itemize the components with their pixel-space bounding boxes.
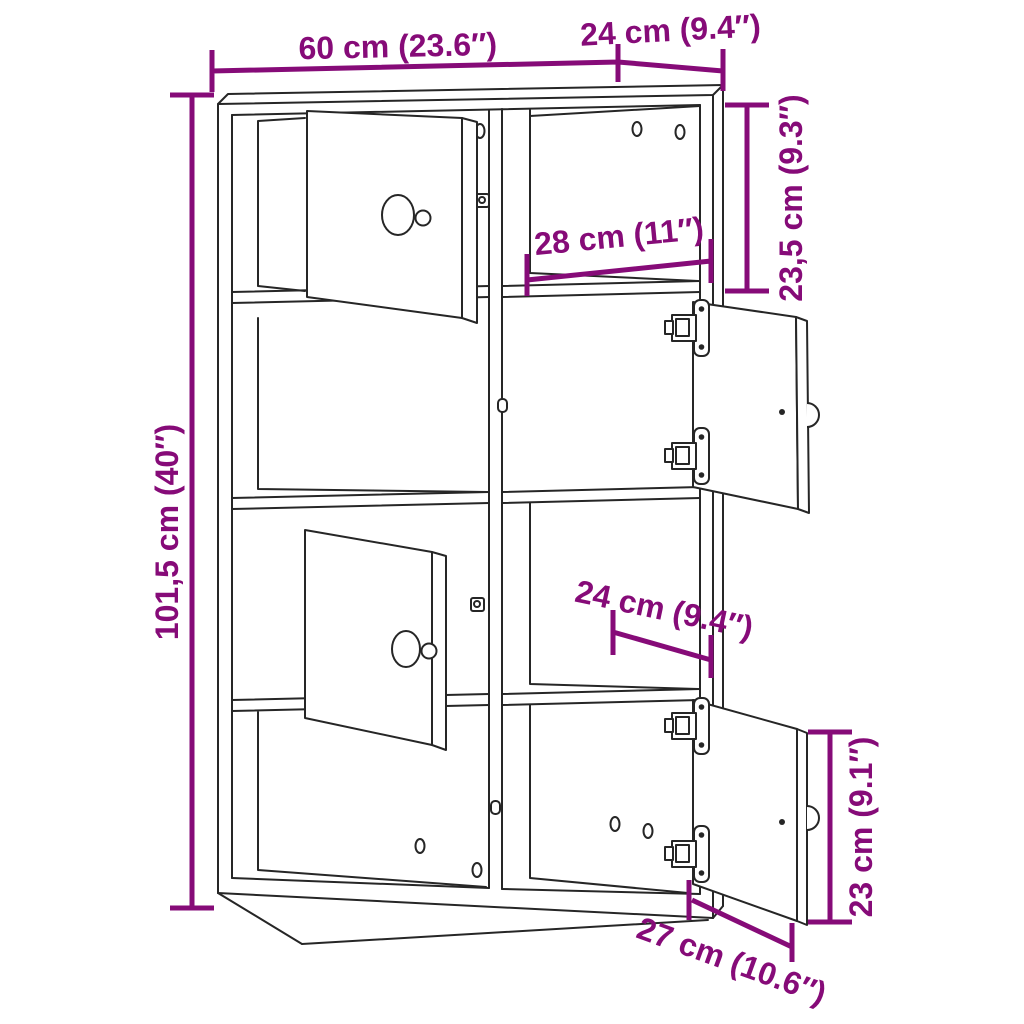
door-knob <box>392 631 420 667</box>
shelf-pin-hole <box>611 817 620 831</box>
shelf-pin-hole <box>633 122 642 136</box>
overall-height-label: 101,5 cm (40″) <box>149 424 185 640</box>
door-knob <box>807 403 819 427</box>
door-edge <box>462 118 477 323</box>
door-edge <box>797 729 807 925</box>
door-height-label: 23 cm (9.1″) <box>843 737 879 918</box>
overall-depth-label: 24 cm (9.4″) <box>579 7 761 52</box>
hinge <box>665 300 709 356</box>
hinge <box>665 428 709 484</box>
shelf-support-nub <box>491 801 500 814</box>
center-divider <box>489 109 502 889</box>
overall-width-dimension: 60 cm (23.6″) <box>212 26 618 92</box>
overall-width-label: 60 cm (23.6″) <box>298 26 497 66</box>
hinge <box>665 698 709 754</box>
compartment-depth-label: 24 cm (9.4″) <box>572 573 756 646</box>
overall-depth-dimension: 24 cm (9.4″) <box>579 7 761 91</box>
shelves <box>232 281 700 711</box>
door-knob-tip <box>422 644 437 659</box>
open-door-top-left <box>307 111 477 323</box>
open-door-middle-left <box>305 530 446 750</box>
door-width-label: 27 cm (10.6″) <box>632 910 831 1012</box>
plinth-left-edge <box>218 893 302 944</box>
door-height-dimension: 23 cm (9.1″) <box>808 732 879 922</box>
shelf-support-nub <box>498 399 507 412</box>
compartment-width-label: 28 cm (11″) <box>533 210 706 262</box>
cam-lock-fitting <box>471 598 484 611</box>
dimension-diagram-svg: 60 cm (23.6″) 24 cm (9.4″) 101,5 cm (40″… <box>0 0 1024 1024</box>
door-knob <box>807 806 819 830</box>
bookcase <box>218 85 819 944</box>
open-door-bottom-right <box>693 700 819 925</box>
shelf-pin-hole <box>676 125 685 139</box>
shelf-3 <box>232 689 700 711</box>
shelf-pin-hole <box>473 863 482 877</box>
bottom-front-edge <box>218 893 713 918</box>
overall-height-dimension: 101,5 cm (40″) <box>149 95 214 908</box>
shelf-pin-hole <box>416 839 425 853</box>
door-knob <box>382 195 414 235</box>
top-panel <box>218 85 723 104</box>
open-door-upper-right <box>693 302 819 513</box>
dimension-diagram: 60 cm (23.6″) 24 cm (9.4″) 101,5 cm (40″… <box>0 0 1024 1024</box>
top-compartment-height-dimension: 23,5 cm (9.3″) <box>725 94 809 301</box>
door-knob-tip <box>416 211 431 226</box>
top-compartment-height-label: 23,5 cm (9.3″) <box>773 94 809 301</box>
door-knob-screw <box>779 819 785 825</box>
hinge <box>665 826 709 882</box>
shelf-pin-hole <box>644 824 653 838</box>
door-knob-screw <box>779 409 785 415</box>
compartment-depth-dimension: 24 cm (9.4″) <box>572 573 756 678</box>
